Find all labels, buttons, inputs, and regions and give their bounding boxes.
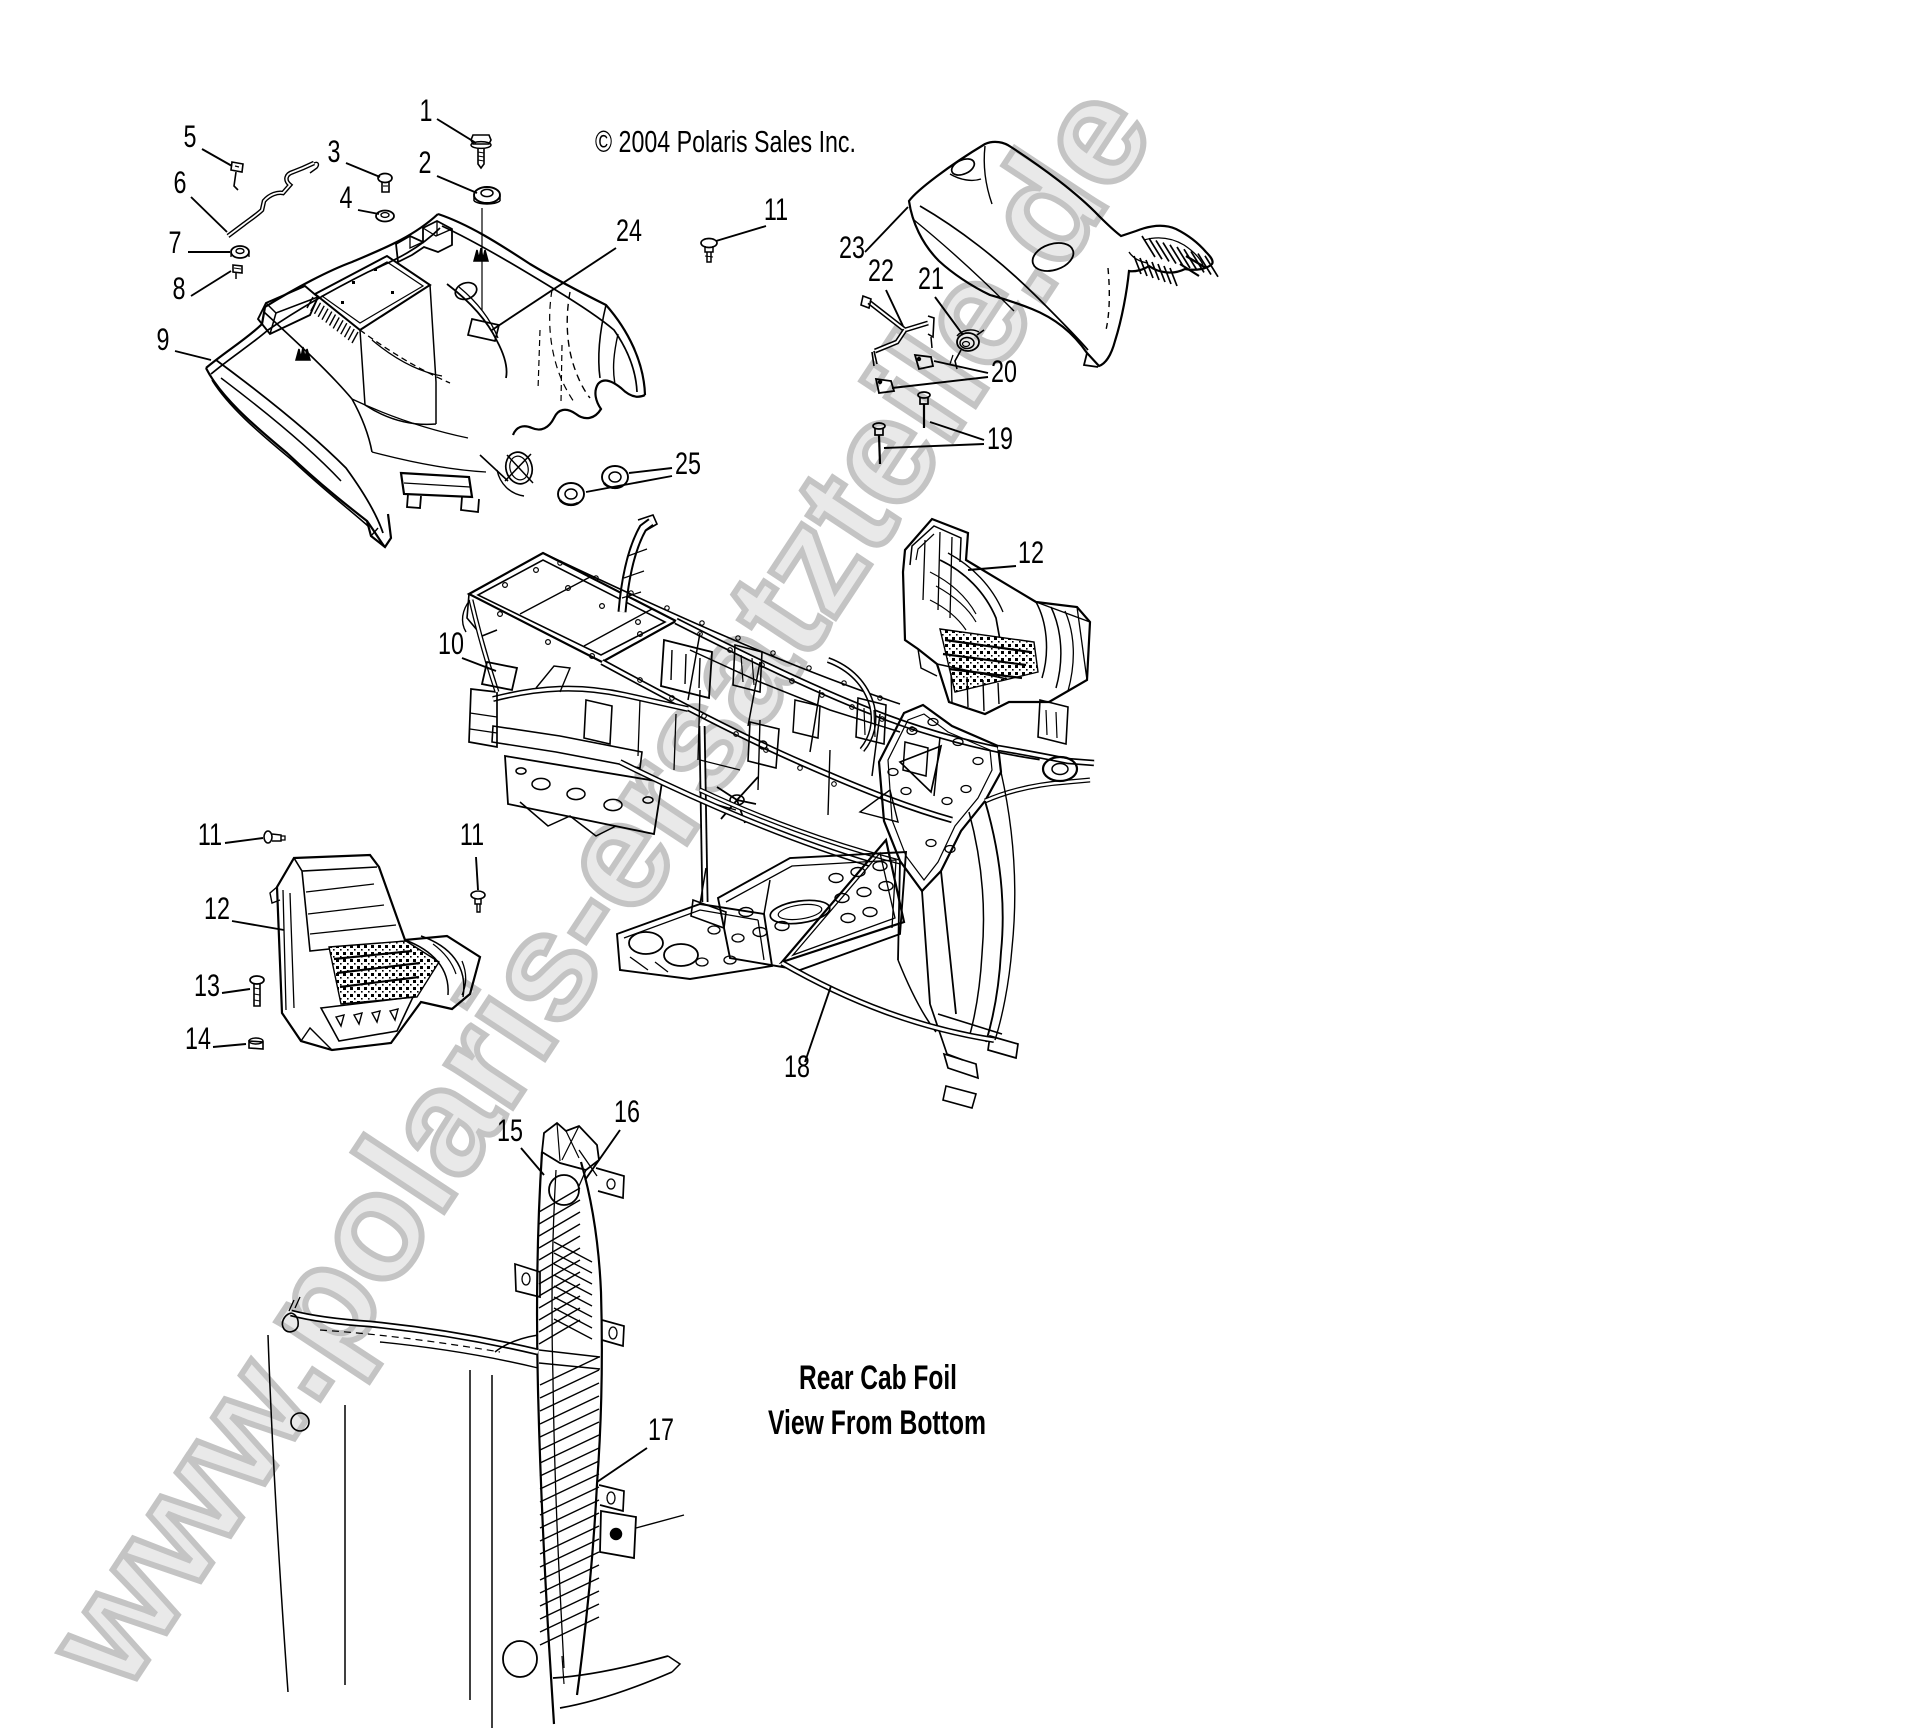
svg-text:19: 19 [987, 421, 1013, 456]
svg-text:16: 16 [614, 1094, 640, 1129]
svg-text:View From Bottom: View From Bottom [768, 1404, 986, 1442]
svg-text:13: 13 [194, 968, 220, 1003]
svg-text:20: 20 [991, 354, 1017, 389]
svg-text:24: 24 [616, 213, 642, 248]
svg-text:14: 14 [185, 1021, 211, 1056]
svg-text:15: 15 [497, 1113, 523, 1148]
svg-text:11: 11 [764, 192, 788, 227]
svg-text:8: 8 [173, 271, 186, 306]
svg-text:25: 25 [675, 446, 701, 481]
svg-text:Rear Cab Foil: Rear Cab Foil [799, 1359, 957, 1397]
svg-text:12: 12 [1018, 535, 1044, 570]
svg-text:10: 10 [438, 626, 464, 661]
svg-text:5: 5 [184, 119, 197, 154]
svg-text:22: 22 [868, 253, 894, 288]
svg-text:23: 23 [839, 230, 865, 265]
svg-text:© 2004 Polaris Sales Inc.: © 2004 Polaris Sales Inc. [595, 124, 856, 159]
svg-text:2: 2 [419, 145, 432, 180]
svg-text:1: 1 [420, 93, 433, 128]
svg-text:17: 17 [648, 1412, 674, 1447]
svg-text:11: 11 [460, 817, 484, 852]
svg-text:6: 6 [174, 165, 187, 200]
svg-text:21: 21 [918, 261, 944, 296]
svg-text:12: 12 [204, 891, 230, 926]
svg-text:18: 18 [784, 1049, 810, 1084]
svg-text:9: 9 [157, 322, 170, 357]
svg-text:11: 11 [198, 817, 222, 852]
svg-text:3: 3 [328, 134, 341, 169]
svg-text:4: 4 [340, 180, 353, 215]
svg-text:7: 7 [169, 225, 182, 260]
